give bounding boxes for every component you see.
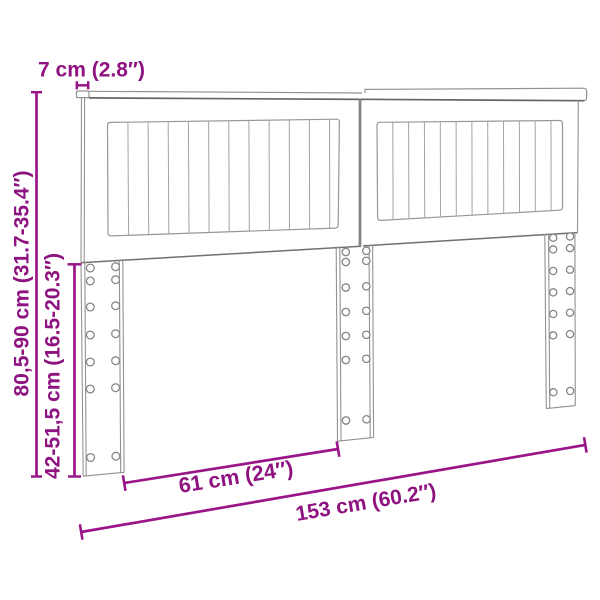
svg-text:7 cm (2.8″): 7 cm (2.8″) xyxy=(38,59,145,82)
svg-text:80,5-90 cm (31.7-35.4″): 80,5-90 cm (31.7-35.4″) xyxy=(11,170,34,396)
svg-text:42-51,5 cm (16.5-20.3″): 42-51,5 cm (16.5-20.3″) xyxy=(42,253,65,479)
